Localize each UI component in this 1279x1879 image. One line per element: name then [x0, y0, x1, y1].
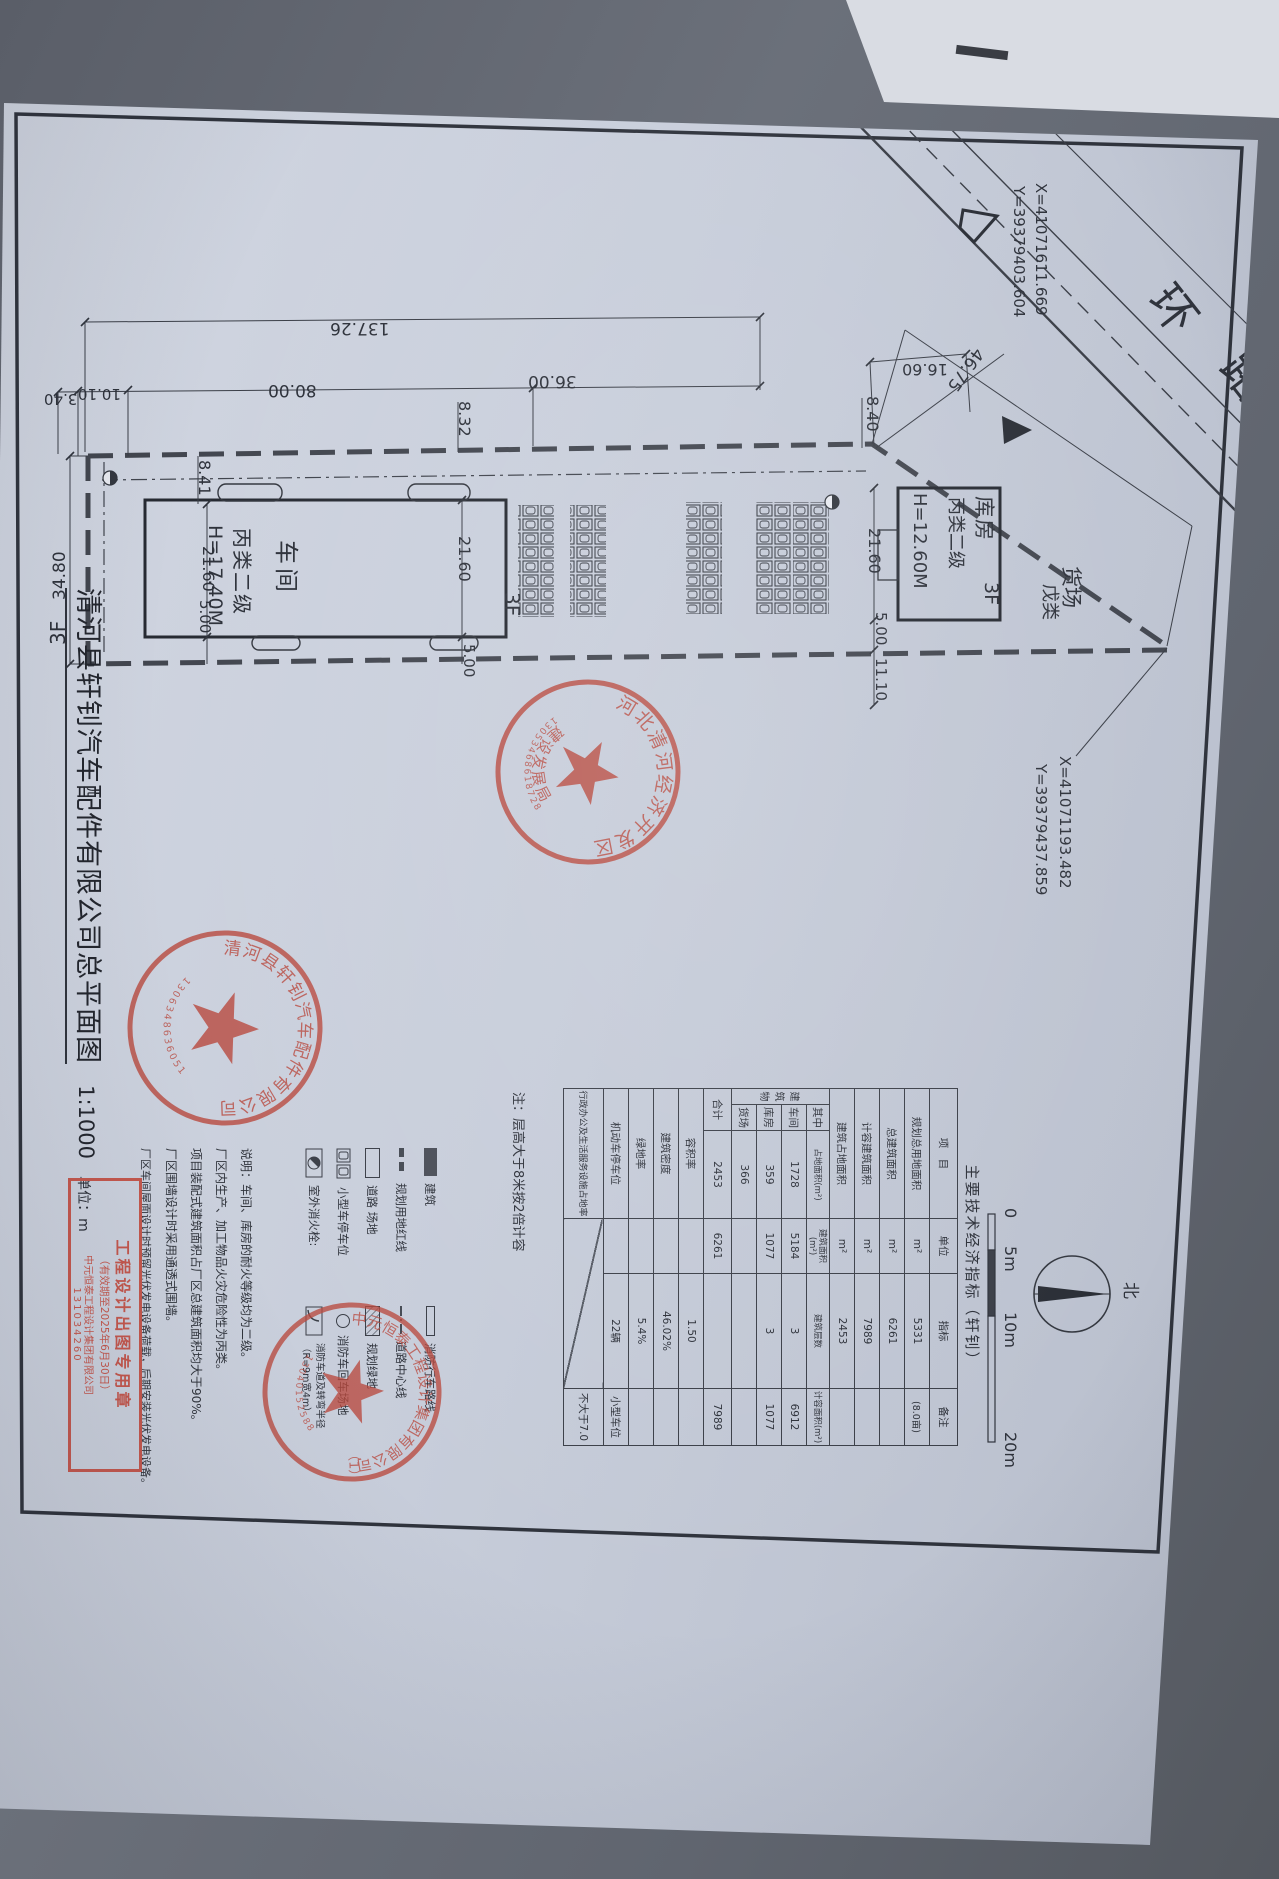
workshop-height: H=17.40M — [204, 525, 224, 626]
freight-yard-class: 戊类 — [1039, 584, 1058, 620]
row-remark: 不大于7.0 — [564, 1389, 604, 1446]
legend-item: 道路 场地 — [358, 1148, 387, 1256]
row-value: 6261 — [880, 1274, 905, 1389]
export-box-validity: （有效期至2025年6月30日） — [97, 1181, 112, 1469]
row-value: 7989 — [704, 1389, 732, 1446]
note-line: 项目装配式建筑面积占厂区总建筑面积均大于90%。 — [183, 1148, 208, 1483]
hdr-unit: 单位 — [930, 1219, 958, 1274]
sheet-edge-mark — [956, 45, 1009, 60]
dim-137-26: 137.26 — [330, 318, 389, 336]
row-value: 7989 — [855, 1274, 880, 1389]
warehouse-class: 丙类二级 — [945, 497, 964, 569]
red-line-dashed-icon — [399, 1148, 404, 1176]
coord-north-x: X=41071611.669 — [1032, 183, 1048, 316]
row-label: 绿地率 — [629, 1089, 654, 1219]
row-value: 5331 — [905, 1274, 930, 1389]
table-row: 机动车停车位 22辆 小型车位 — [604, 1089, 629, 1446]
row-label: 计容建筑面积 — [855, 1089, 880, 1219]
scalebar-5m: 5m — [1001, 1246, 1018, 1272]
warehouse-height: H=12.60M — [909, 493, 928, 589]
table-row: 行政办公及生活服务设施占地率 不大于7.0 — [564, 1089, 604, 1446]
row-remark — [880, 1389, 905, 1446]
row-value — [732, 1219, 757, 1274]
hydrant-icon — [306, 1148, 324, 1178]
row-remark — [855, 1389, 880, 1446]
scalebar-10m: 10m — [1001, 1312, 1018, 1348]
row-label: 建筑密度 — [654, 1089, 679, 1219]
among-label: 其中 — [807, 1105, 830, 1131]
row-unit — [654, 1219, 679, 1274]
svg-text:1306348636051: 1306348636051 — [159, 974, 192, 1079]
table-row: 计容建筑面积 m² 7989 — [855, 1089, 880, 1446]
stamp-serial: 13040152588 — [291, 1352, 316, 1435]
row-label: 车间 — [782, 1105, 807, 1131]
dim-21-60-b: 21.60 — [455, 536, 472, 582]
table-row: 货场 366 — [732, 1089, 757, 1446]
row-remark — [654, 1389, 679, 1446]
row-label: 建筑占地面积 — [830, 1089, 855, 1219]
table-row: 容积率 1.50 — [679, 1089, 704, 1446]
dim-80-00: 80.00 — [268, 380, 317, 398]
sub-hdr: 建筑层数 — [807, 1274, 830, 1389]
table-row: 建筑占地面积 m² 2453 — [830, 1089, 855, 1446]
legend-label: 规划用地红线 — [394, 1183, 410, 1252]
table-row: 规划总用地面积 m² 5331 (8.0亩) — [905, 1089, 930, 1446]
coord-east-y: Y=39379437.859 — [1032, 764, 1048, 895]
row-remark — [830, 1389, 855, 1446]
scale-bar — [988, 1214, 995, 1442]
row-value — [732, 1389, 757, 1446]
table-row: 车间 1728 5184 3 6912 — [782, 1089, 807, 1446]
row-label: 规划总用地面积 — [905, 1089, 930, 1219]
row-unit: m² — [855, 1219, 880, 1274]
row-label: 库房 — [757, 1105, 782, 1131]
table-row: 绿地率 5.4% — [629, 1089, 654, 1446]
table-row: 总建筑面积 m² 6261 — [880, 1089, 905, 1446]
row-remark — [629, 1389, 654, 1446]
sub-hdr: 计容面积(m²) — [807, 1389, 830, 1446]
stamp-star — [191, 991, 260, 1065]
note-line: 说明：车间、库房的耐火等级均为二级。 — [233, 1148, 258, 1483]
export-box-number: 131034260 — [71, 1181, 82, 1469]
stamp-serial: 1306348636051 — [159, 974, 192, 1079]
row-value: 22辆 — [604, 1274, 629, 1389]
photo-of-site-plan: 环 路 X=41071611.669 Y=39379403.604 X=4107… — [0, 0, 1279, 1879]
table-note: 注：层高大于8米按2倍计容 — [510, 1092, 524, 1252]
row-value: 5184 — [782, 1219, 807, 1274]
scalebar-20m: 20m — [1001, 1432, 1018, 1468]
workshop-name: 车间 — [273, 540, 298, 596]
row-remark: (8.0亩) — [905, 1389, 930, 1446]
dim-36-00: 36.00 — [528, 371, 577, 389]
row-value: 1.50 — [679, 1274, 704, 1389]
row-value: 1077 — [757, 1219, 782, 1274]
hdr-value: 指标 — [930, 1274, 958, 1389]
page-title: 清河县轩钊汽车配件有限公司总平面图 — [65, 588, 103, 1064]
survey-marker — [960, 210, 997, 242]
legend-item: 规划用地红线 — [387, 1148, 416, 1256]
dim-16-60: 16.60 — [902, 360, 948, 377]
row-value: 46.02% — [654, 1274, 679, 1389]
row-value: 5.4% — [629, 1274, 654, 1389]
row-value: 1077 — [757, 1389, 782, 1446]
dim-8-40: 8.40 — [863, 396, 880, 432]
row-remark — [679, 1389, 704, 1446]
parking-stall-icon — [336, 1148, 352, 1180]
legend-item: 小型车停车位 — [329, 1148, 358, 1256]
table-row: 建筑密度 46.02% — [654, 1089, 679, 1446]
dim-21-60-c: 21.60 — [865, 528, 882, 574]
entrance-arrow — [1002, 416, 1032, 444]
dim-3-40: 3.40 — [44, 390, 77, 406]
row-label: 总建筑面积 — [880, 1089, 905, 1219]
export-box-title: 工程设计出图专用章 — [112, 1181, 136, 1469]
slash-cell — [564, 1219, 604, 1389]
note-line: 厂区内生产、加工物品火灾危险性为丙类。 — [208, 1148, 233, 1483]
legend-label: 道路 场地 — [365, 1185, 381, 1235]
row-value: 6261 — [704, 1219, 732, 1274]
economic-table-title: 主要技术经济指标（轩钊） — [958, 1088, 983, 1445]
row-label: 行政办公及生活服务设施占地率 — [564, 1089, 604, 1219]
row-value — [704, 1274, 732, 1389]
warehouse-name: 库房 — [973, 496, 995, 542]
dim-8-41: 8.41 — [195, 460, 212, 496]
row-value: 2453 — [704, 1131, 732, 1219]
dim-5-00-c: 5.00 — [872, 612, 888, 645]
freight-yard-name: 货场 — [1060, 566, 1082, 608]
compass-north-label: 北 — [1120, 1282, 1138, 1299]
economic-table: 项 目 单位 指标 备注 规划总用地面积 m² 5331 (8.0亩) 总建筑面… — [563, 1088, 958, 1446]
export-box-company: 中元恒泰工程设计集团有限公司 — [82, 1181, 97, 1469]
north-compass — [1034, 1256, 1110, 1332]
scalebar-0: 0 — [1001, 1208, 1018, 1218]
ring-road-lines — [846, 112, 1279, 552]
sub-hdr: 占地面积(m²) — [807, 1131, 830, 1219]
table-row: 建筑物 其中 占地面积(m²) 建筑面积(m²) 建筑层数 计容面积(m²) — [807, 1089, 830, 1446]
export-seal-box: 工程设计出图专用章 （有效期至2025年6月30日） 中元恒泰工程设计集团有限公… — [68, 1178, 142, 1472]
table-row: 项 目 单位 指标 备注 — [930, 1089, 958, 1446]
row-value: 366 — [732, 1131, 757, 1219]
legend-label: 建筑 — [423, 1183, 439, 1206]
workshop-floors: 3F — [501, 592, 522, 616]
legend-item: 室外消火栓: — [300, 1148, 329, 1256]
drawing-scale: 1:1000 — [74, 1085, 98, 1159]
building-fill-icon — [424, 1148, 437, 1176]
legend-label: 室外消火栓: — [307, 1185, 323, 1246]
row-value: 1728 — [782, 1131, 807, 1219]
row-label: 容积率 — [679, 1089, 704, 1219]
row-value: 359 — [757, 1131, 782, 1219]
svg-text:13040152588: 13040152588 — [291, 1352, 316, 1435]
group-label: 建筑物 — [732, 1089, 830, 1105]
drawing-paper: 环 路 X=41071611.669 Y=39379403.604 X=4107… — [0, 0, 1279, 1879]
row-label: 货场 — [732, 1105, 757, 1131]
hdr-remark: 备注 — [930, 1389, 958, 1446]
legend-item: 建筑 — [416, 1148, 445, 1256]
stamp-design: 中元恒泰工程设计集团有限公司 13040152588 （1） — [260, 1300, 444, 1484]
row-remark: 小型车位 — [604, 1389, 629, 1446]
stamp-copy-number: （1） — [345, 1448, 361, 1483]
workshop-class: 丙类二级 — [231, 528, 252, 616]
row-value: 6912 — [782, 1389, 807, 1446]
row-value: 2453 — [830, 1274, 855, 1389]
stamp-star — [554, 735, 624, 808]
row-value: 3 — [782, 1274, 807, 1389]
row-unit — [604, 1219, 629, 1274]
warehouse-floors: 3F — [980, 582, 1000, 605]
dim-5-00-b: 5.00 — [460, 644, 476, 677]
coord-east-x: X=41071193.482 — [1056, 756, 1072, 889]
parking-stalls — [518, 502, 829, 617]
stamp-star — [322, 1359, 385, 1425]
row-value: 3 — [757, 1274, 782, 1389]
sub-hdr: 建筑面积(m²) — [807, 1219, 830, 1274]
row-unit — [679, 1219, 704, 1274]
row-unit: m² — [880, 1219, 905, 1274]
row-value — [732, 1274, 757, 1389]
dim-10-10: 10.10 — [78, 385, 121, 401]
hdr-item: 项 目 — [930, 1089, 958, 1219]
row-label: 合计 — [704, 1089, 732, 1131]
table-row: 合计 2453 6261 7989 — [704, 1089, 732, 1446]
row-label: 机动车停车位 — [604, 1089, 629, 1219]
notes-block: 说明：车间、库房的耐火等级均为二级。 厂区内生产、加工物品火灾危险性为丙类。 项… — [130, 1148, 258, 1483]
legend-col1: 建筑 规划用地红线 道路 场地 小型车停车位 — [300, 1148, 445, 1256]
row-unit: m² — [905, 1219, 930, 1274]
row-unit: m² — [830, 1219, 855, 1274]
dim-11-10: 11.10 — [872, 658, 888, 701]
table-row: 库房 359 1077 3 1077 — [757, 1089, 782, 1446]
stamp-devzone: 河北清河经济开发区 建设发展局 13053468618728 — [493, 677, 683, 867]
note-line: 厂区围墙设计时采用通透式围墙。 — [158, 1148, 183, 1483]
road-area-icon — [365, 1148, 380, 1178]
dim-8-32: 8.32 — [455, 401, 472, 437]
legend-label: 小型车停车位 — [336, 1187, 352, 1256]
dimension-ticks — [54, 313, 970, 709]
stamp-company: 清河县轩钊汽车配件有限公司 1306348636051 — [125, 928, 325, 1128]
economic-table-block: 主要技术经济指标（轩钊） 项 目 单位 指标 备注 规划总用地面积 m² 533… — [528, 1088, 983, 1445]
coord-north-y: Y=39379403.604 — [1010, 186, 1026, 317]
row-unit — [629, 1219, 654, 1274]
